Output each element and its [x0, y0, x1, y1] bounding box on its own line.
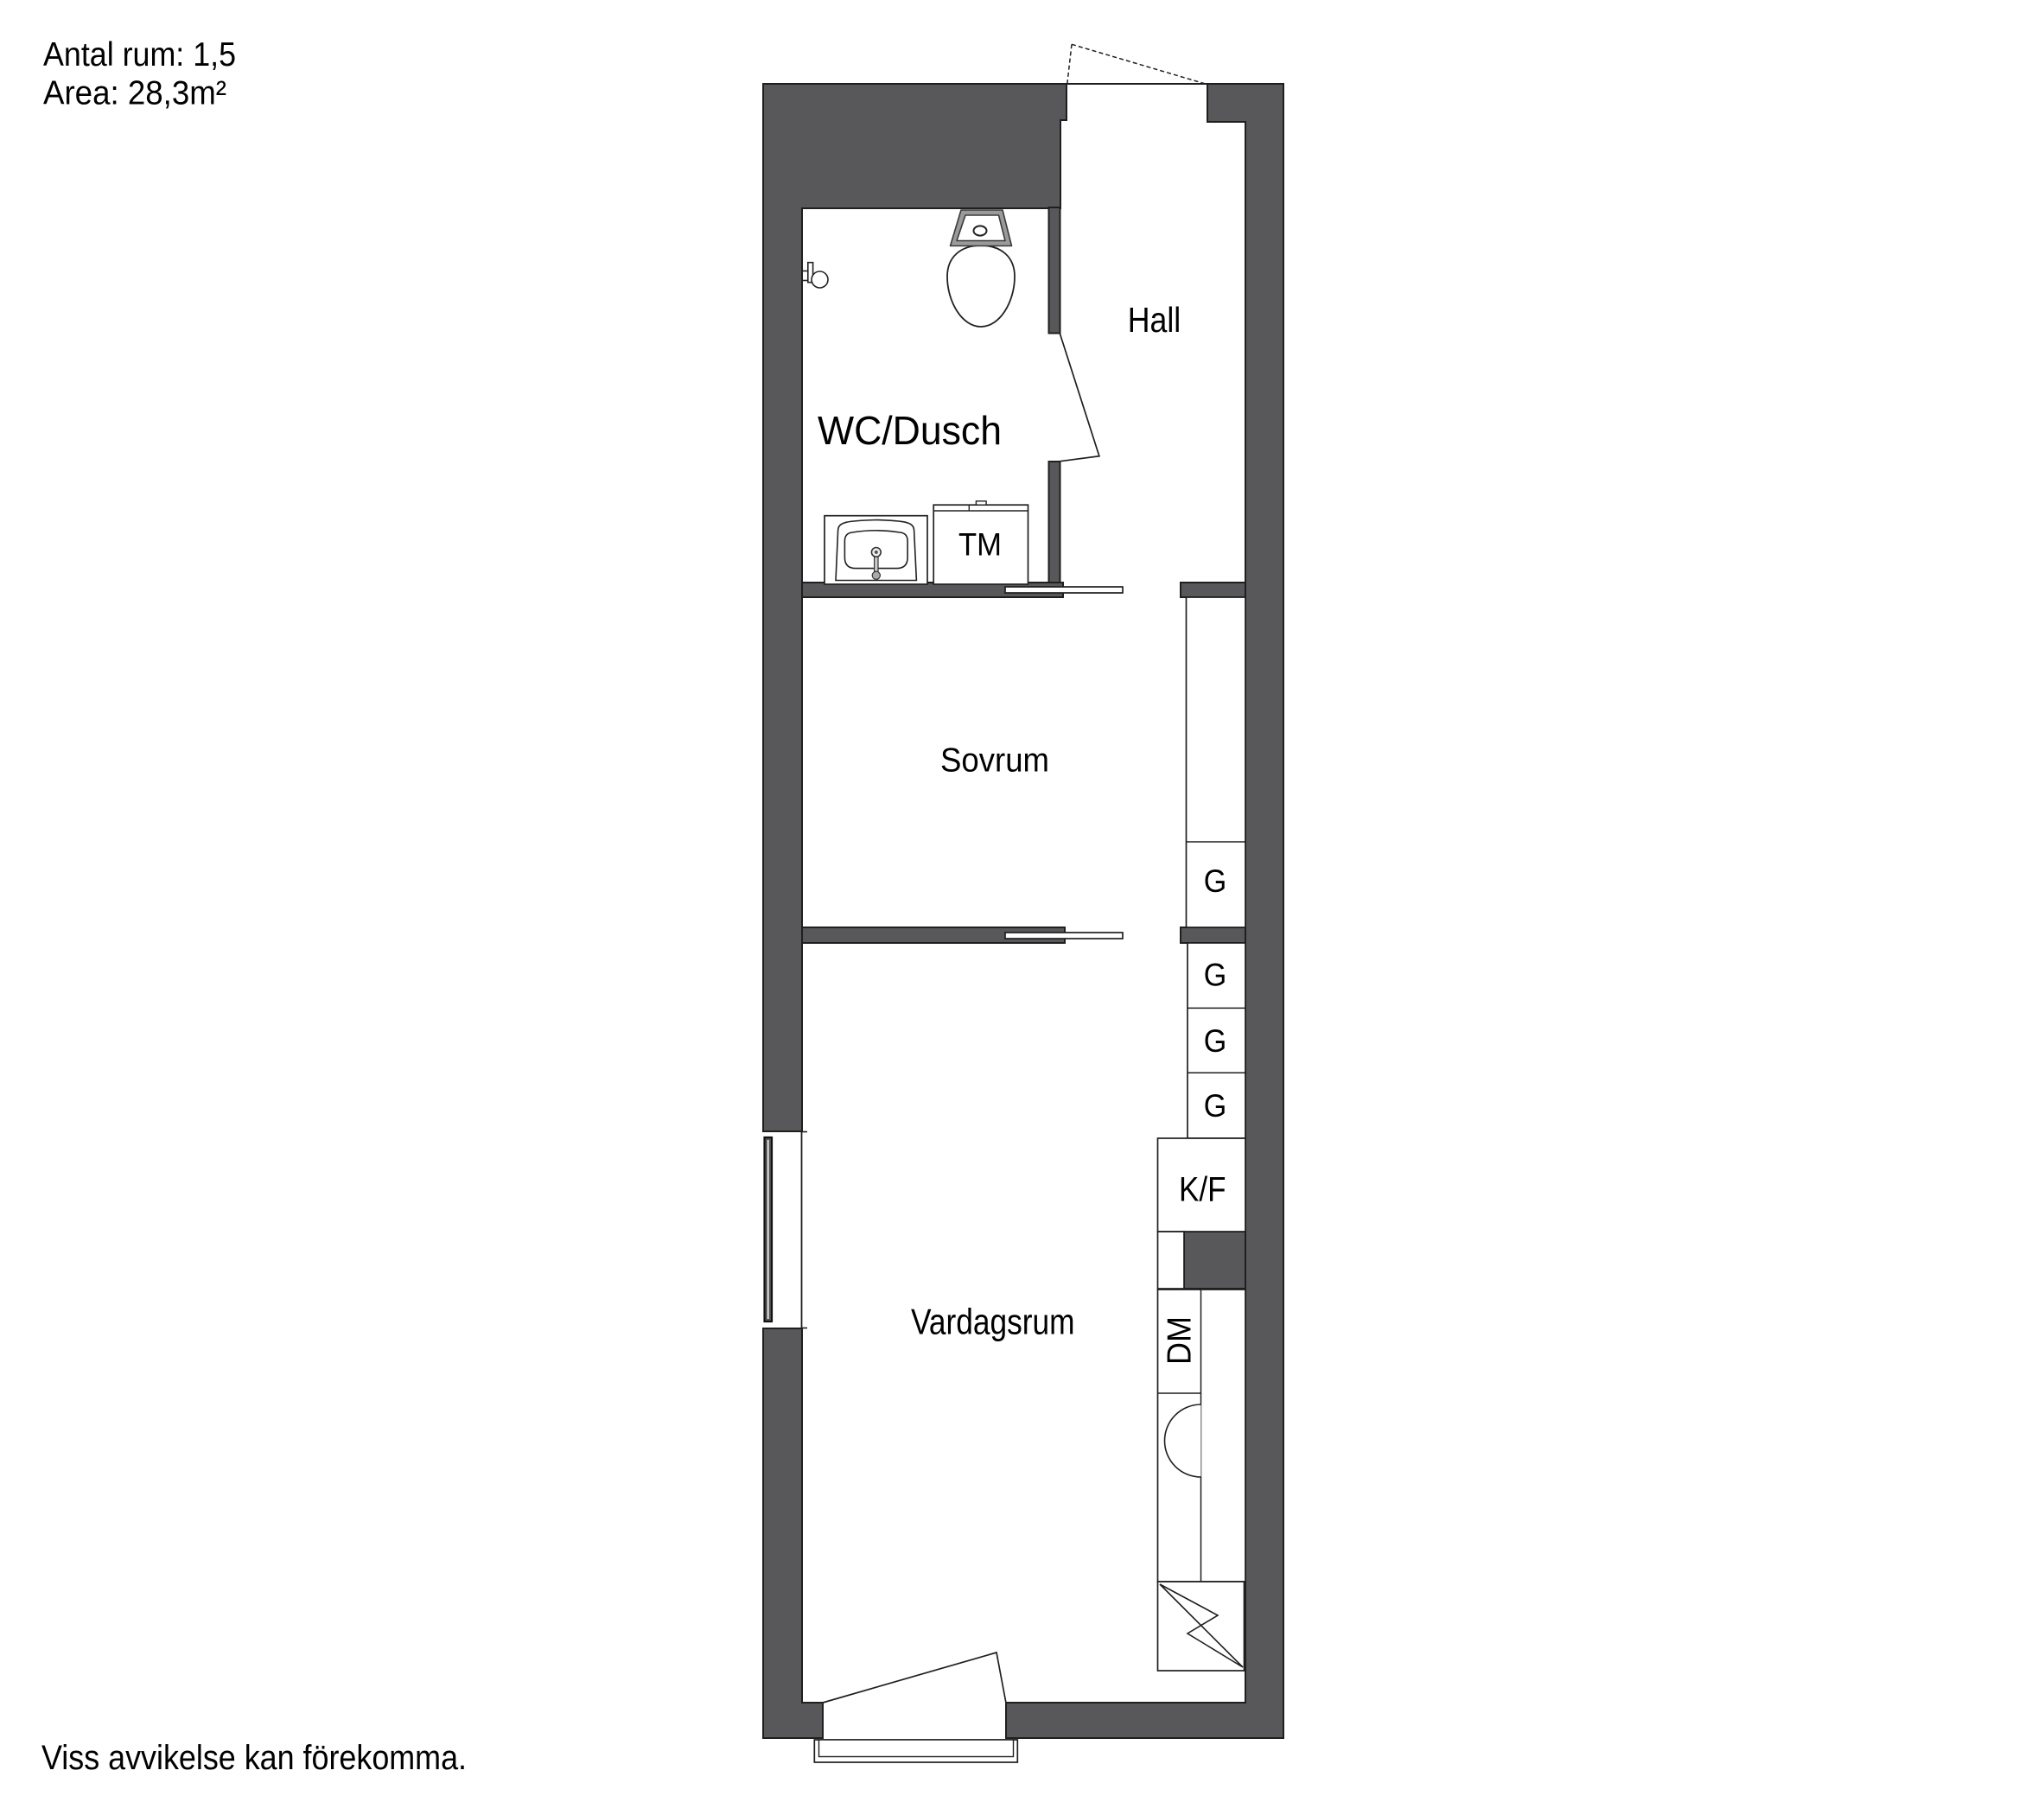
svg-text:DM: DM — [1162, 1316, 1199, 1365]
svg-text:G: G — [1204, 1023, 1227, 1059]
svg-text:G: G — [1204, 863, 1227, 899]
svg-text:Viss avvikelse kan förekomma.: Viss avvikelse kan förekomma. — [41, 1739, 467, 1777]
svg-text:G: G — [1204, 1088, 1227, 1124]
svg-text:Sovrum: Sovrum — [940, 742, 1049, 780]
svg-text:WC/Dusch: WC/Dusch — [818, 408, 1002, 453]
svg-text:K/F: K/F — [1179, 1171, 1226, 1209]
svg-text:Antal rum: 1,5: Antal rum: 1,5 — [43, 36, 236, 73]
svg-text:Hall: Hall — [1128, 300, 1181, 340]
svg-text:G: G — [1204, 958, 1227, 993]
svg-text:Vardagsrum: Vardagsrum — [911, 1302, 1075, 1342]
svg-text:Area: 28,3m²: Area: 28,3m² — [43, 75, 226, 112]
svg-text:TM: TM — [958, 527, 1002, 563]
